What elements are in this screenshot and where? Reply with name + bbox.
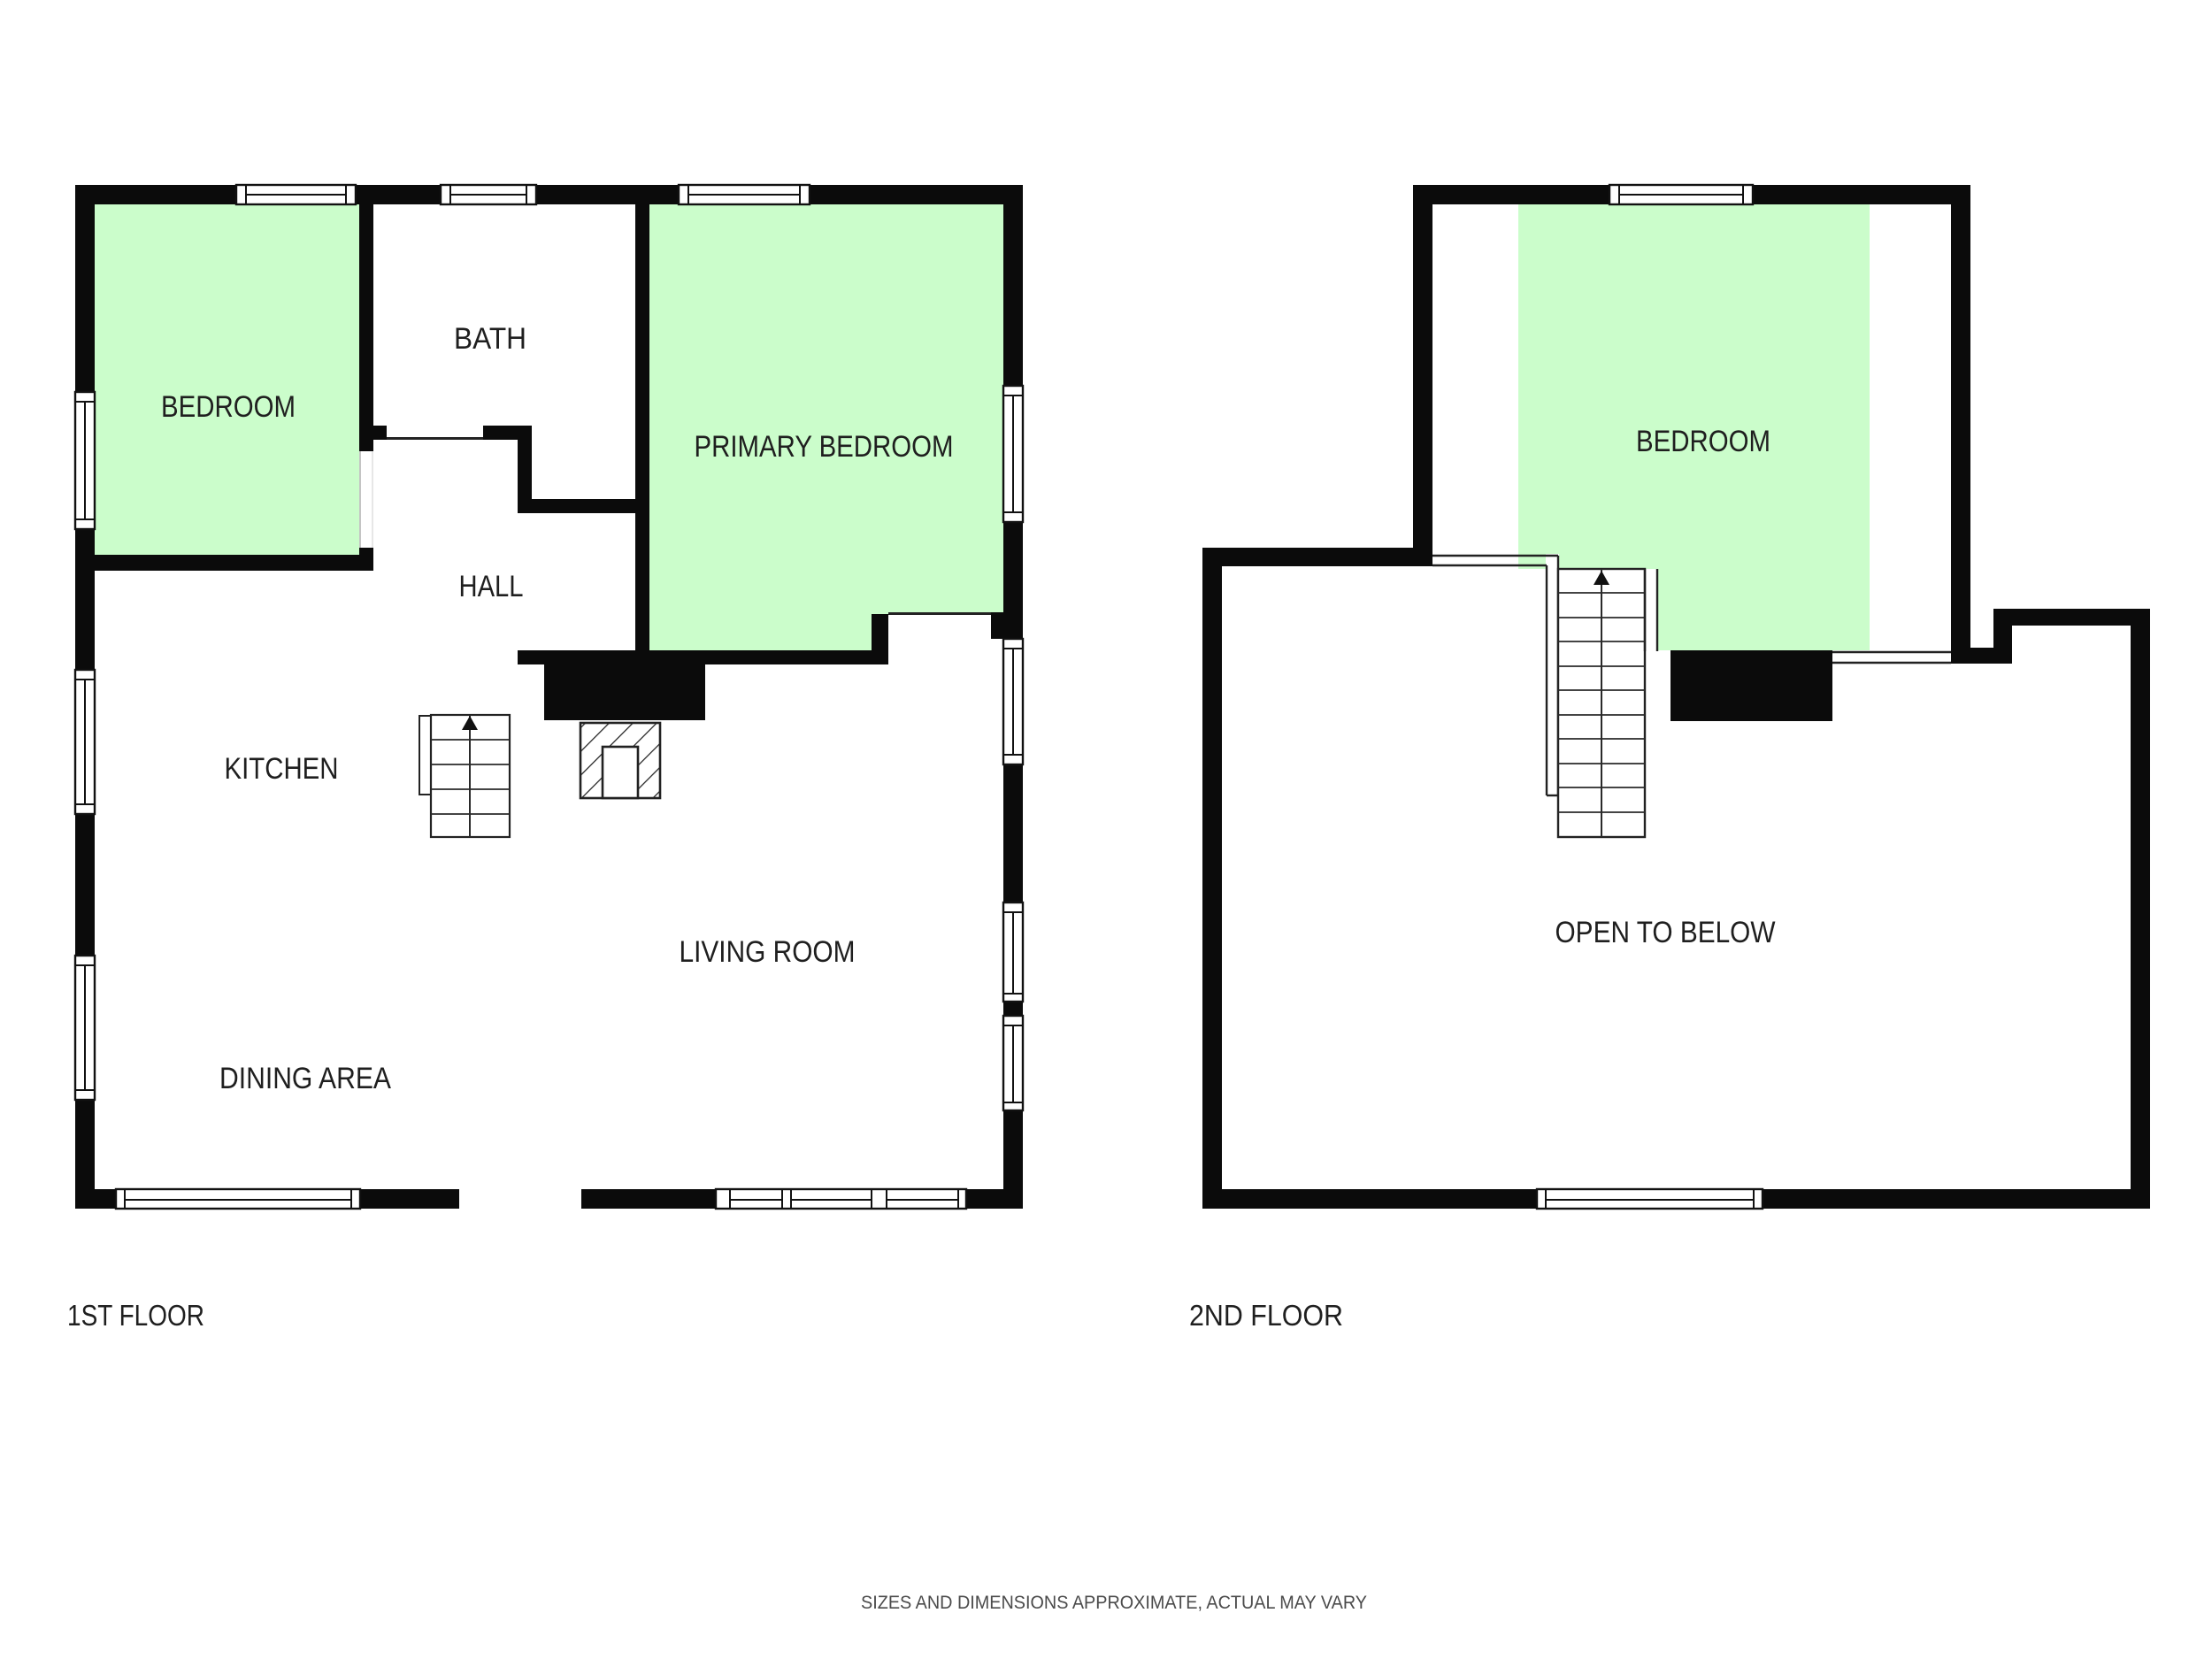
svg-text:HALL: HALL (459, 570, 524, 603)
svg-text:BATH: BATH (454, 322, 526, 356)
svg-text:2ND FLOOR: 2ND FLOOR (1189, 1299, 1343, 1332)
svg-text:1ST FLOOR: 1ST FLOOR (67, 1299, 204, 1332)
svg-text:PRIMARY BEDROOM: PRIMARY BEDROOM (695, 430, 954, 464)
svg-text:BEDROOM: BEDROOM (1636, 425, 1770, 458)
svg-text:KITCHEN: KITCHEN (225, 752, 339, 786)
svg-text:SIZES AND DIMENSIONS APPROXIMA: SIZES AND DIMENSIONS APPROXIMATE, ACTUAL… (861, 1593, 1367, 1613)
svg-text:LIVING ROOM: LIVING ROOM (680, 935, 856, 969)
svg-text:DINING AREA: DINING AREA (219, 1062, 391, 1095)
svg-text:BEDROOM: BEDROOM (161, 390, 296, 424)
svg-text:OPEN TO BELOW: OPEN TO BELOW (1555, 916, 1776, 949)
